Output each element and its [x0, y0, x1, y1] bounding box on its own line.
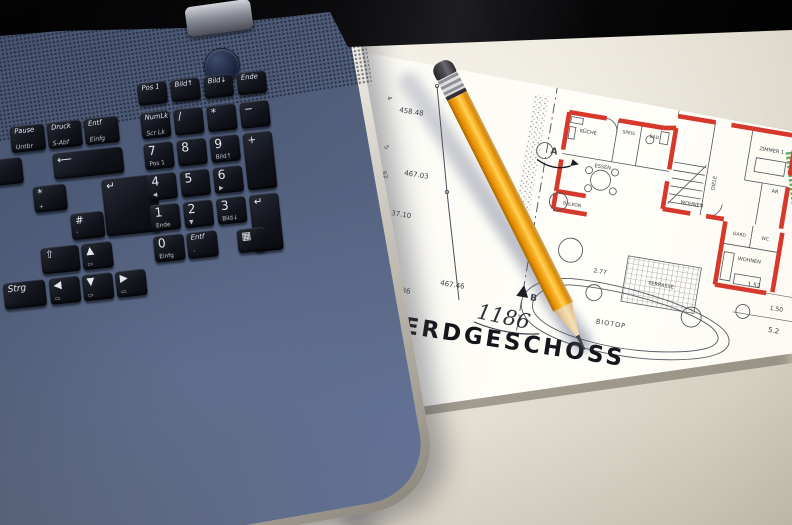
elevation-3710: 37.10: [391, 209, 412, 220]
key-arrow-left[interactable]: ◀▭: [48, 275, 81, 304]
key-plus-star[interactable]: *+: [32, 183, 68, 213]
room-label-zimmer1: ZIMMER 1: [759, 146, 785, 156]
key-np-plus[interactable]: +: [242, 130, 277, 190]
margin-mark: 4: [385, 95, 393, 101]
key-shift[interactable]: ⇧: [40, 244, 81, 274]
dim-52: 5.2: [767, 326, 779, 336]
interior-walls: [552, 98, 792, 252]
margin-mark: 5: [382, 144, 390, 150]
key-np-multiply[interactable]: *: [206, 103, 238, 132]
keyboard: Pos 1Bild↑Bild↓EndePauseUntbrDruckS-AbfE…: [6, 67, 303, 319]
key-np-3[interactable]: 3Bild↓: [216, 196, 248, 225]
key-backspace[interactable]: ⟵: [52, 146, 125, 180]
key-np-0[interactable]: 0Einfg: [153, 233, 186, 262]
key-np-8[interactable]: 8: [176, 137, 208, 166]
key-pause[interactable]: PauseUntbr: [9, 123, 46, 153]
key-numlk[interactable]: NumLkScr Lk: [140, 110, 172, 139]
key-np-2[interactable]: 2▼: [183, 199, 215, 228]
room-label-gard: GARD: [732, 231, 746, 239]
room-label-wohnen-1: WOHNEN: [680, 200, 704, 210]
room-label-kueche: KÜCHE: [579, 127, 597, 137]
key-calc[interactable]: ▦: [236, 227, 266, 254]
room-label-wohnen-2: WOHNEN: [737, 256, 761, 266]
photo-scene: 458.48 467.03 37.10 467.36 467.46 4 5 62: [0, 0, 792, 525]
outbuildings: [558, 42, 687, 104]
key-accent[interactable]: ´: [0, 157, 24, 187]
dim-150: 1.50: [769, 305, 784, 314]
key-np-1[interactable]: 1Ende: [149, 203, 181, 232]
elevation-46746: 467.46: [440, 279, 466, 291]
key-druck[interactable]: DruckS-Abf: [46, 119, 83, 149]
key-strg[interactable]: Strg: [3, 279, 48, 310]
key-arrow-right[interactable]: ▶▭: [115, 269, 148, 298]
key-pos1[interactable]: Pos 1: [137, 81, 169, 106]
room-label-wc: WC: [761, 236, 769, 243]
key-np-4[interactable]: 4◀: [146, 172, 178, 201]
room-label-essen: ESSEN: [594, 163, 611, 172]
room-label-biotop: BIOTOP: [595, 317, 626, 330]
dim-277: 2.77: [593, 267, 608, 276]
room-label-bad: BAD: [649, 134, 660, 142]
key-np-7[interactable]: 7Pos 1: [143, 141, 175, 170]
key-hash[interactable]: #': [70, 211, 106, 241]
key-np-6[interactable]: 6▶: [212, 165, 244, 194]
room-label-ar: AR: [771, 189, 779, 196]
key-arrow-down[interactable]: ▼▭: [81, 272, 114, 301]
svg-text:A: A: [550, 147, 559, 158]
key-np-9[interactable]: 9Bild↑: [209, 134, 241, 163]
room-label-diele: DIELE: [710, 175, 718, 190]
section-marker-a: A: [536, 145, 581, 171]
room-label-balkon: BALKON: [563, 200, 582, 209]
key-bild-down[interactable]: Bild↓: [203, 74, 235, 99]
room-label-speis: SPEIS: [622, 129, 636, 137]
key-np-divide[interactable]: /: [173, 107, 205, 136]
svg-text:B: B: [529, 293, 538, 304]
elevation-46703: 467.03: [404, 169, 429, 181]
key-np-minus[interactable]: −: [239, 100, 271, 129]
key-entf-einfg[interactable]: EntfEinfg: [83, 115, 120, 145]
gravel-path: [555, 51, 686, 88]
key-np-entf[interactable]: Entf´: [186, 230, 219, 259]
key-bild-up[interactable]: Bild↑: [170, 77, 202, 102]
key-ende[interactable]: Ende: [236, 70, 268, 95]
key-arrow-up[interactable]: ▲▭: [81, 241, 114, 270]
key-np-5[interactable]: 5: [179, 168, 211, 197]
